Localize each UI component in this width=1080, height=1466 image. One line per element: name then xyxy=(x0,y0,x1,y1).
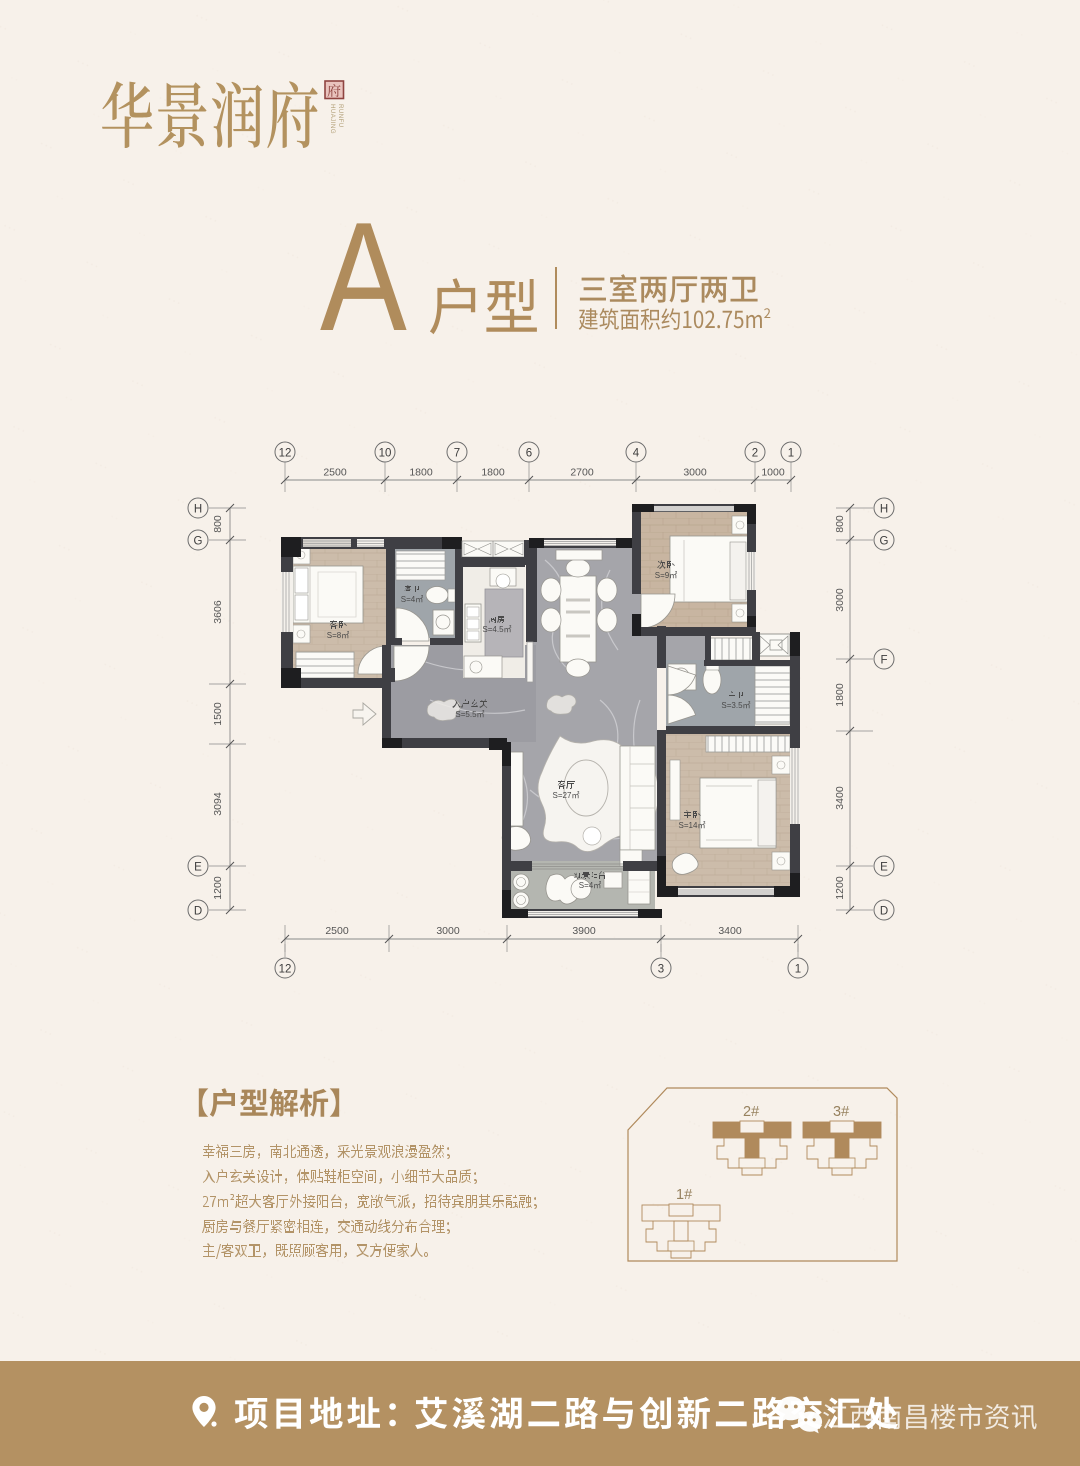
svg-text:HUAJING: HUAJING xyxy=(329,104,336,134)
svg-text:1: 1 xyxy=(788,448,794,460)
svg-text:S=4㎡: S=4㎡ xyxy=(579,881,601,890)
svg-text:3: 3 xyxy=(658,964,664,976)
svg-text:1800: 1800 xyxy=(409,467,433,479)
svg-text:1#: 1# xyxy=(676,1187,692,1203)
svg-text:12: 12 xyxy=(279,964,292,976)
svg-text:S=9㎡: S=9㎡ xyxy=(655,571,677,580)
svg-text:S=3.5㎡: S=3.5㎡ xyxy=(721,701,750,710)
svg-text:1800: 1800 xyxy=(834,683,846,707)
svg-text:D: D xyxy=(880,906,888,918)
svg-text:G: G xyxy=(880,536,889,548)
svg-text:2500: 2500 xyxy=(325,925,349,937)
svg-text:3400: 3400 xyxy=(718,925,742,937)
svg-text:12: 12 xyxy=(279,448,292,460)
svg-text:800: 800 xyxy=(212,515,224,533)
svg-text:4: 4 xyxy=(633,448,640,460)
svg-text:D: D xyxy=(194,906,202,918)
svg-text:RUNFU: RUNFU xyxy=(337,104,344,128)
svg-text:800: 800 xyxy=(834,515,846,533)
svg-text:6: 6 xyxy=(526,448,532,460)
svg-text:S=8㎡: S=8㎡ xyxy=(327,631,349,640)
svg-text:S=5.5㎡: S=5.5㎡ xyxy=(455,710,484,719)
svg-text:2500: 2500 xyxy=(323,467,347,479)
svg-text:3000: 3000 xyxy=(683,467,707,479)
svg-text:S=4㎡: S=4㎡ xyxy=(401,595,423,604)
svg-text:3400: 3400 xyxy=(834,786,846,810)
svg-text:2#: 2# xyxy=(743,1104,759,1120)
svg-text:F: F xyxy=(880,655,887,667)
svg-text:S=4.5㎡: S=4.5㎡ xyxy=(482,625,511,634)
svg-text:S=27㎡: S=27㎡ xyxy=(553,791,580,800)
svg-text:1000: 1000 xyxy=(761,467,785,479)
svg-text:3000: 3000 xyxy=(436,925,460,937)
svg-text:10: 10 xyxy=(379,448,392,460)
svg-text:2700: 2700 xyxy=(570,467,594,479)
svg-text:H: H xyxy=(194,504,202,516)
svg-text:1800: 1800 xyxy=(481,467,505,479)
svg-text:H: H xyxy=(880,504,888,516)
svg-text:S=14㎡: S=14㎡ xyxy=(679,821,706,830)
svg-text:3606: 3606 xyxy=(212,600,224,624)
svg-text:1200: 1200 xyxy=(834,876,846,900)
svg-text:G: G xyxy=(194,536,203,548)
svg-text:1: 1 xyxy=(795,964,801,976)
svg-text:A: A xyxy=(320,190,407,363)
svg-text:E: E xyxy=(880,862,888,874)
svg-text:3094: 3094 xyxy=(212,792,224,816)
svg-text:3000: 3000 xyxy=(834,588,846,612)
svg-text:1200: 1200 xyxy=(212,876,224,900)
svg-text:E: E xyxy=(194,862,202,874)
svg-text:3900: 3900 xyxy=(572,925,596,937)
svg-text:2: 2 xyxy=(752,448,758,460)
svg-text:7: 7 xyxy=(454,448,460,460)
svg-text:3#: 3# xyxy=(833,1104,849,1120)
svg-text:1500: 1500 xyxy=(212,702,224,726)
